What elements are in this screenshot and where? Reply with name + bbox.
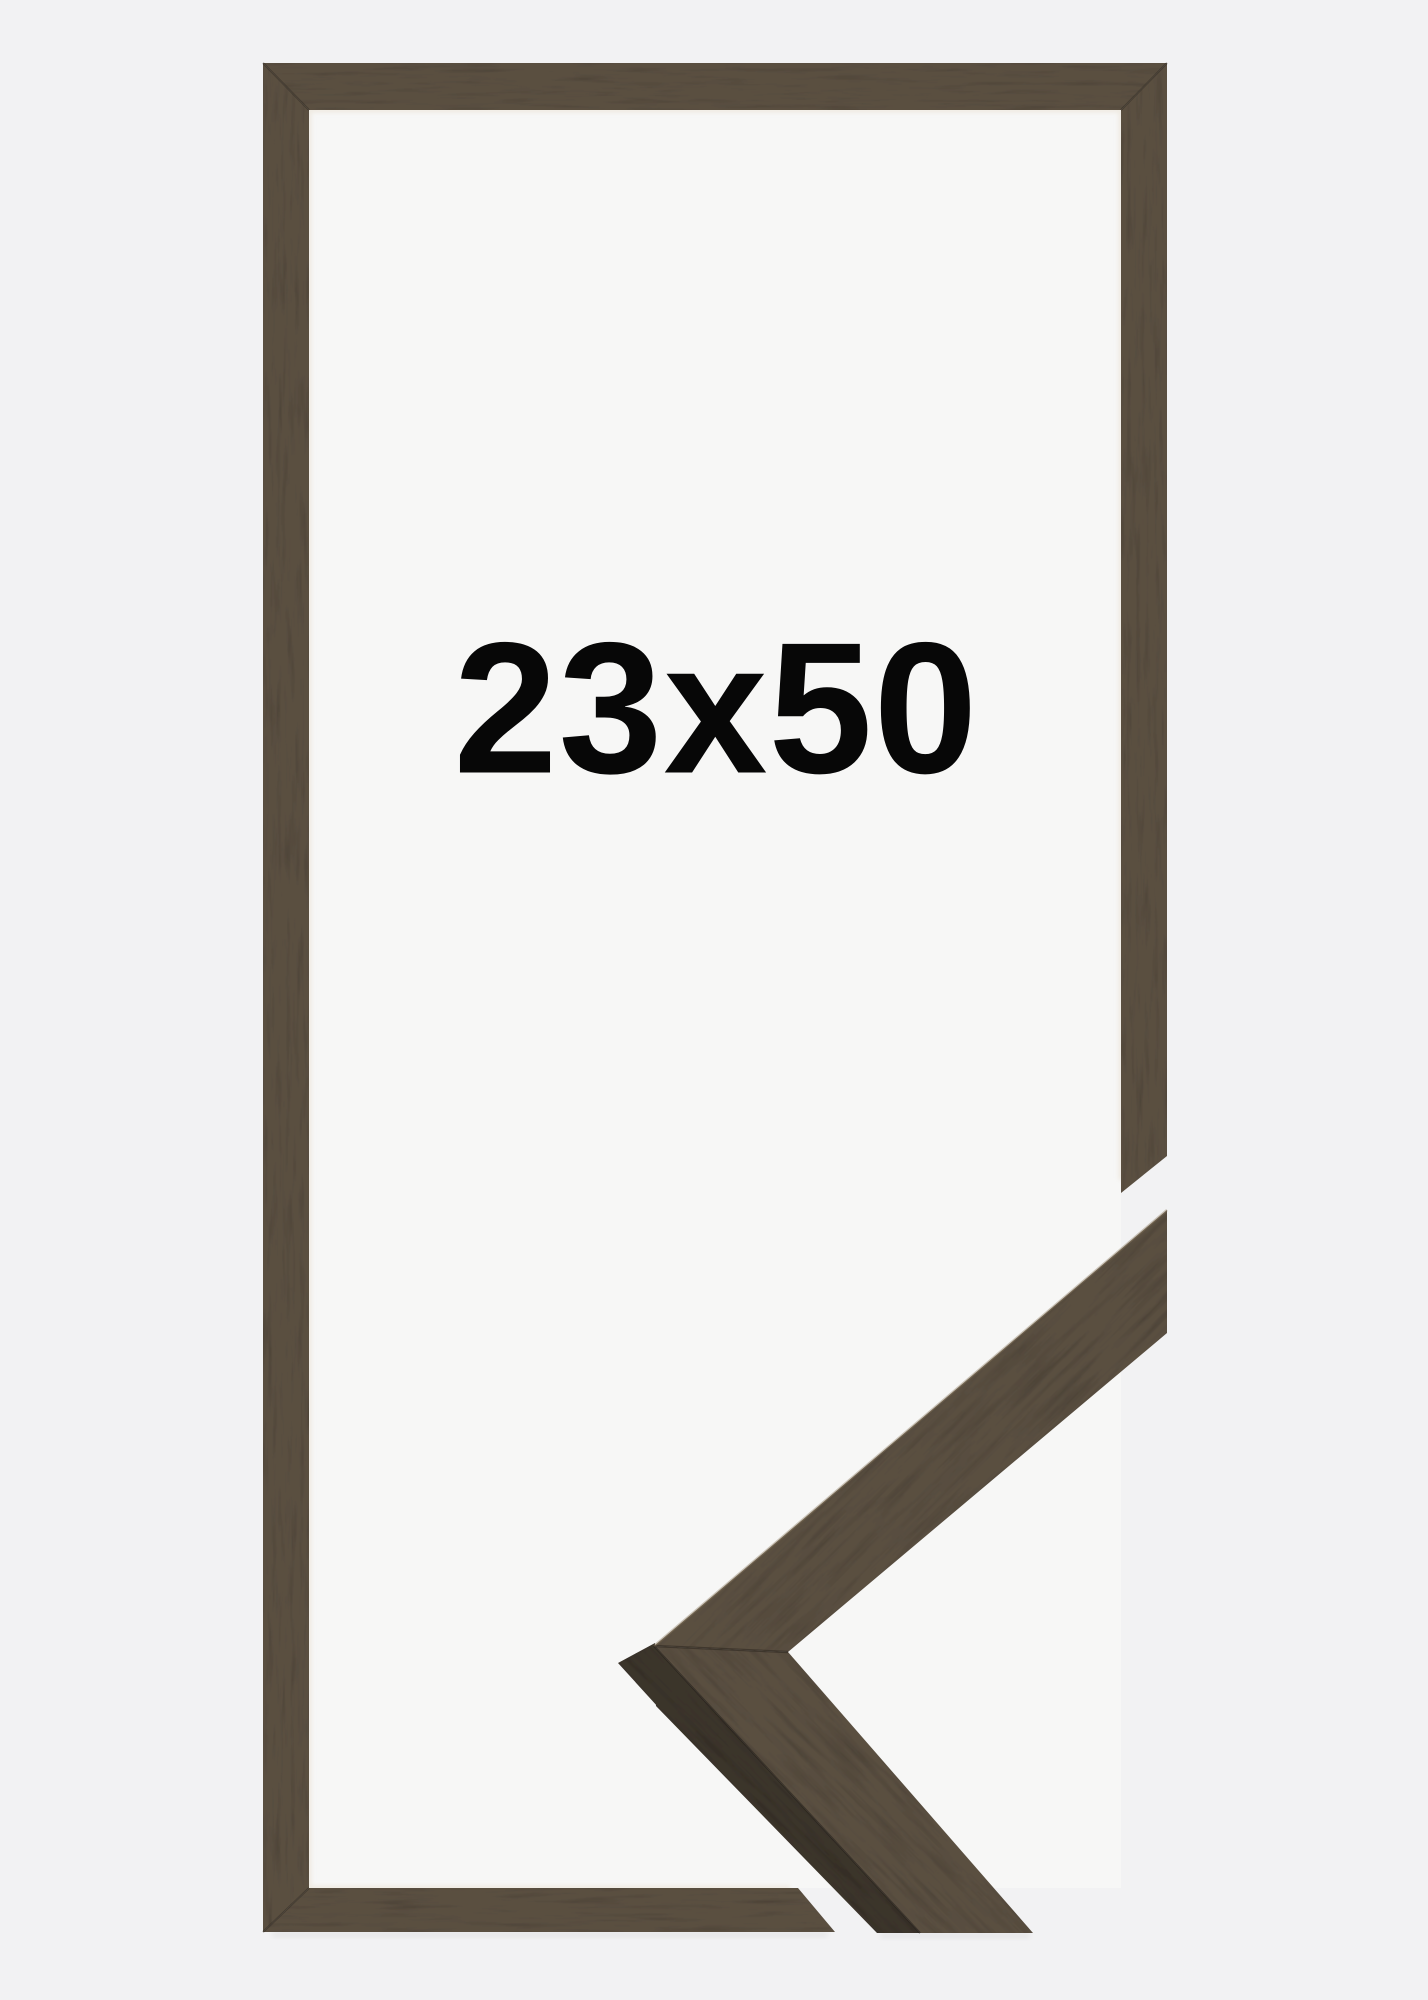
frame-bottom-rail — [263, 1888, 835, 1932]
frame-illustration — [0, 0, 1428, 2000]
frame-bottom-shadow — [272, 1932, 828, 1937]
frame-right-rail — [1121, 63, 1167, 1193]
frame-left-rail — [263, 63, 309, 1932]
size-label: 23x50 — [453, 615, 978, 802]
corner-sample-shadow — [880, 1933, 1030, 1938]
frame-top-rail — [263, 63, 1167, 110]
product-image: 23x50 — [0, 0, 1428, 2000]
